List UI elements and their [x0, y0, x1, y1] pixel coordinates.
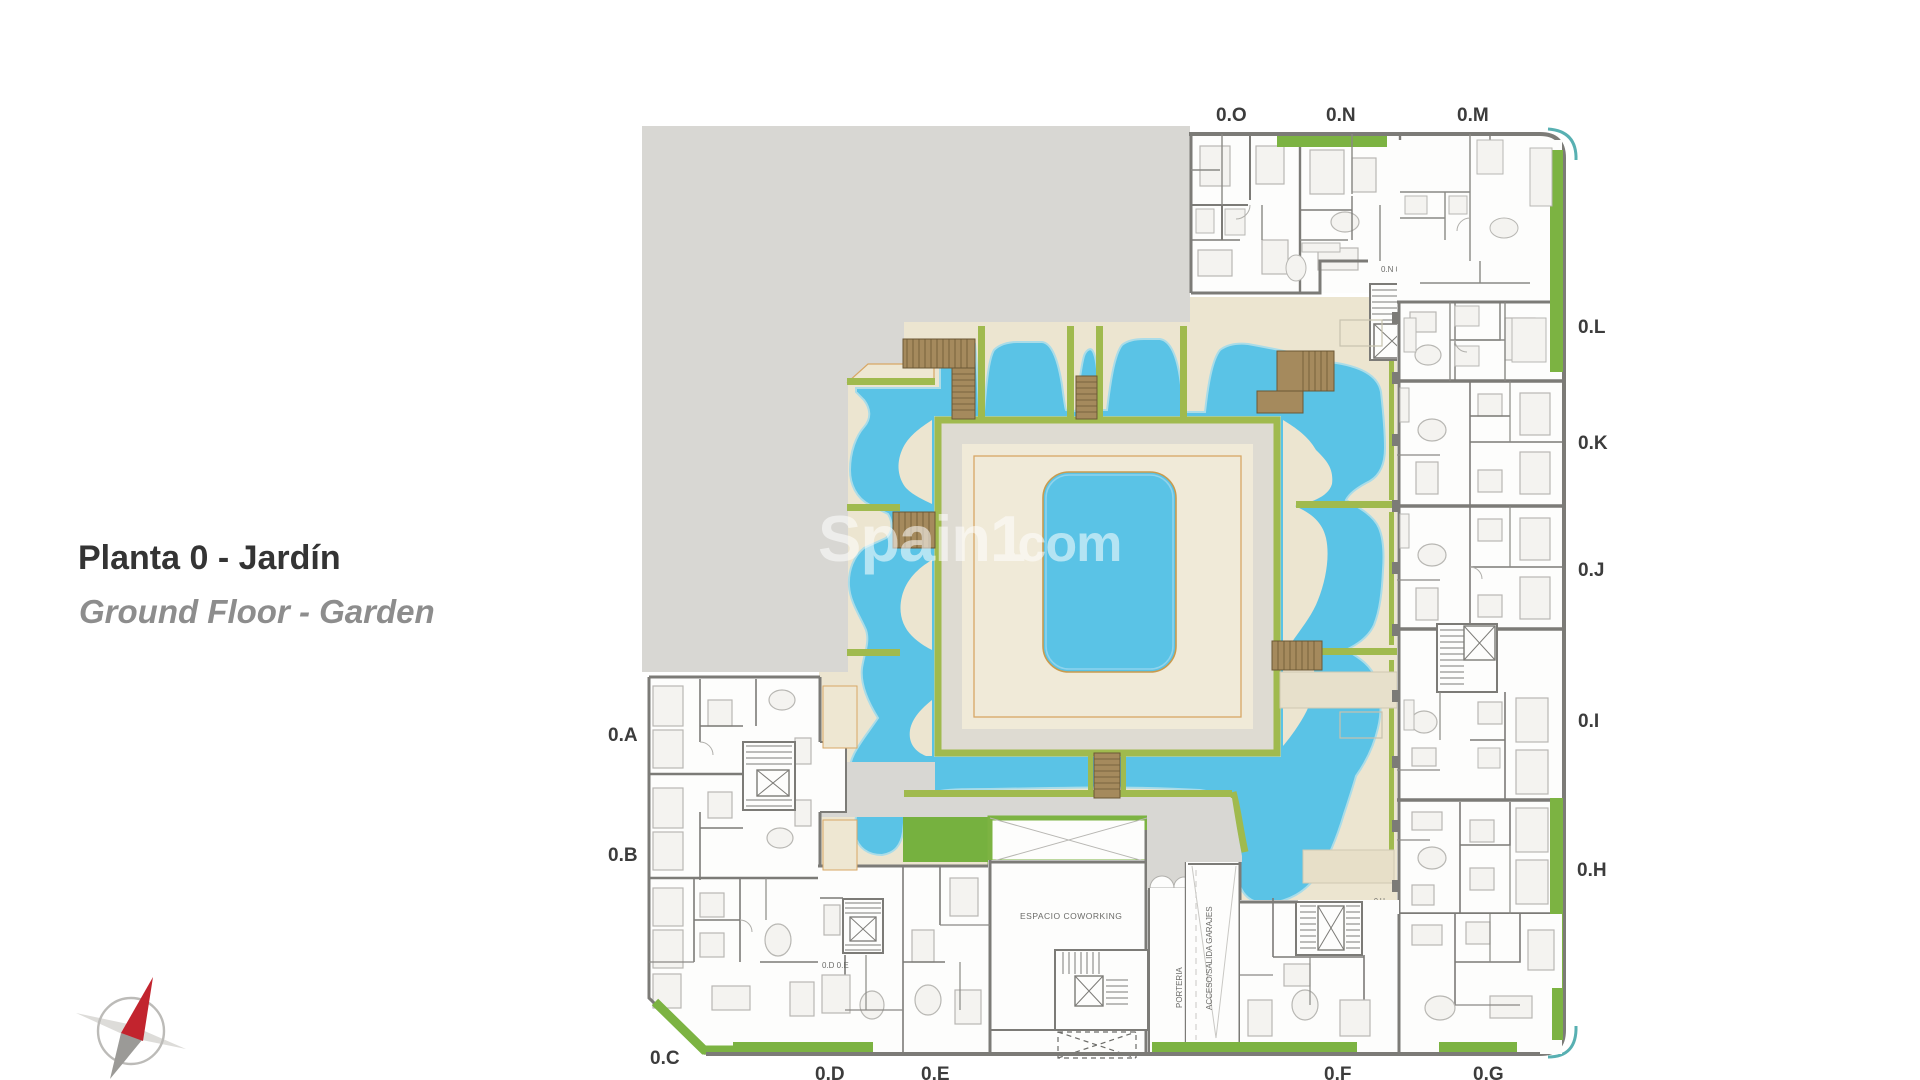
svg-text:0.O: 0.O [1216, 105, 1247, 126]
svg-text:0.B: 0.B [608, 845, 638, 866]
svg-text:0.H: 0.H [1577, 860, 1607, 881]
svg-text:.com: .com [1004, 515, 1121, 573]
svg-text:ACCESO/SALIDA GARAJES: ACCESO/SALIDA GARAJES [1205, 906, 1214, 1010]
svg-text:0.M: 0.M [1457, 105, 1489, 126]
svg-text:0.J: 0.J [1578, 560, 1604, 581]
svg-text:0.A: 0.A [608, 725, 638, 746]
svg-text:0.F: 0.F [1324, 1064, 1351, 1080]
svg-text:0.K: 0.K [1578, 433, 1608, 454]
svg-text:0.D: 0.D [815, 1064, 845, 1080]
svg-text:Spain1: Spain1 [818, 502, 1025, 575]
svg-text:0.E: 0.E [921, 1064, 950, 1080]
svg-text:0.G: 0.G [1473, 1064, 1504, 1080]
svg-text:0.I: 0.I [1578, 711, 1599, 732]
svg-text:0.N: 0.N [1326, 105, 1356, 126]
svg-text:0.C: 0.C [650, 1048, 680, 1069]
svg-text:Ground Floor - Garden: Ground Floor - Garden [79, 593, 435, 630]
svg-text:0.L: 0.L [1578, 317, 1606, 338]
svg-text:0.D 0.E: 0.D 0.E [822, 961, 849, 970]
svg-text:ESPACIO COWORKING: ESPACIO COWORKING [1020, 911, 1122, 921]
svg-text:Planta 0 - Jardín: Planta 0 - Jardín [78, 539, 341, 577]
svg-text:PORTERIA: PORTERIA [1175, 967, 1184, 1008]
